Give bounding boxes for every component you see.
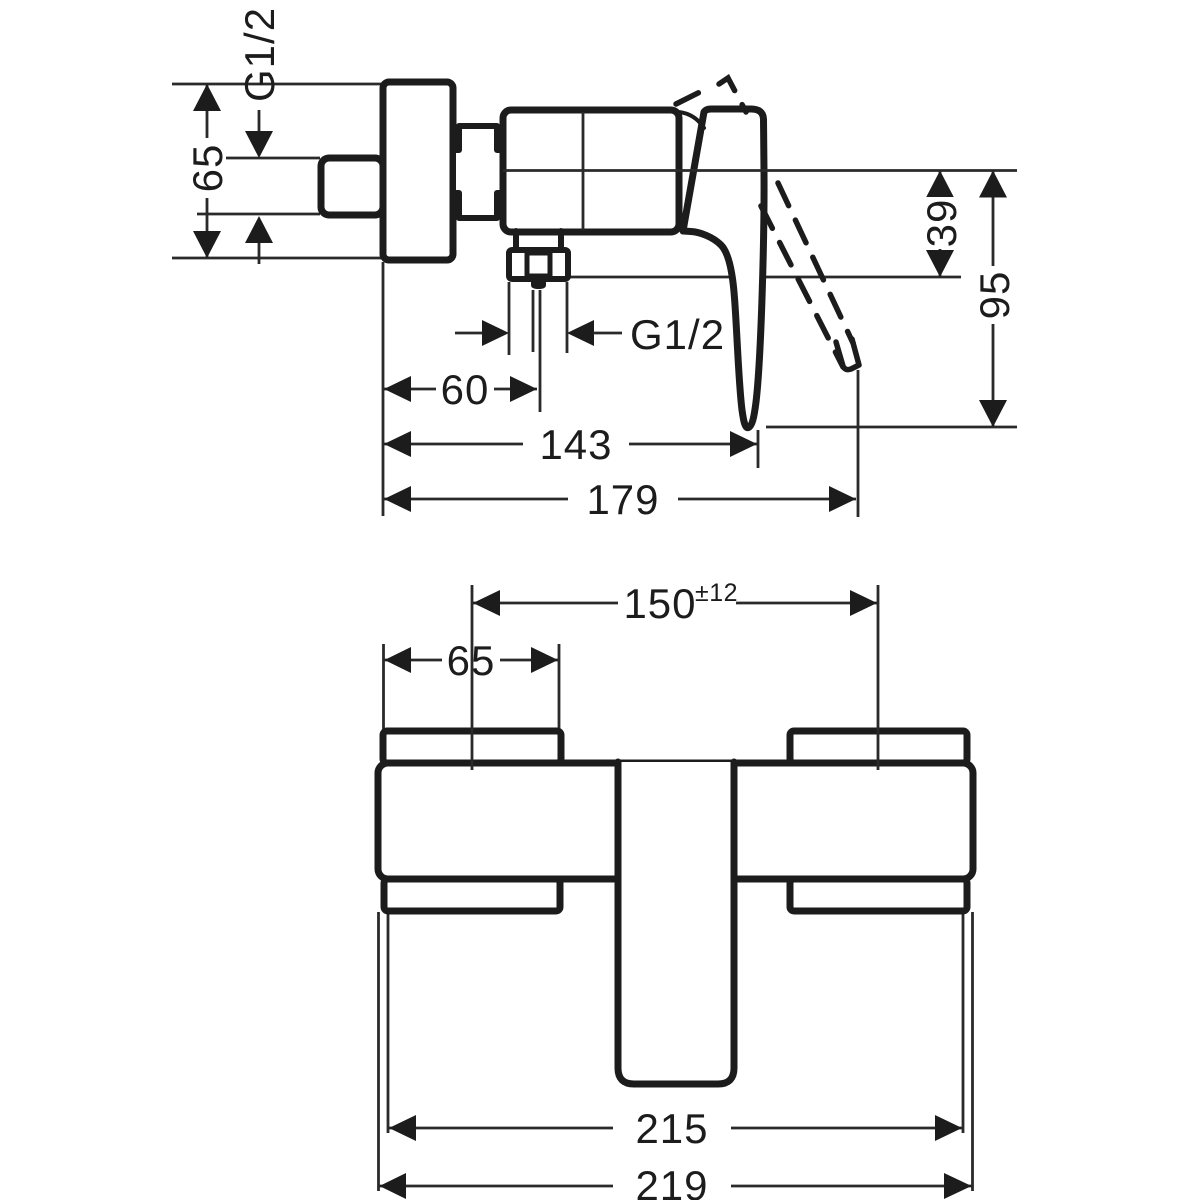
inlet-fitting — [321, 158, 383, 215]
dim-60-label: 60 — [441, 366, 490, 413]
dim-center-to-lever-tip: 95 — [971, 171, 1018, 428]
dim-179-label: 179 — [586, 476, 659, 523]
dim-215-label: 215 — [635, 1105, 708, 1152]
dim-150-tolerance-label: ±12 — [695, 579, 738, 607]
side-view-fixture — [321, 78, 859, 428]
dim-connection-centers: 150 ±12 — [473, 579, 877, 627]
top-view-fixture — [378, 731, 973, 1084]
drawing-page: 65 G1/2 39 95 — [0, 0, 1200, 1200]
technical-drawing: 65 G1/2 39 95 — [0, 0, 1200, 1200]
dim-39-label: 39 — [918, 199, 965, 248]
flange-right — [790, 879, 967, 911]
label-outlet-thread: G1/2 — [455, 311, 725, 358]
lever-handle — [683, 109, 764, 428]
union-nut — [453, 126, 503, 218]
inlet-thread-label: G1/2 — [236, 7, 283, 102]
dim-overall-width: 219 — [380, 1162, 972, 1200]
side-view: 65 G1/2 39 95 — [172, 7, 1018, 523]
dim-center-to-outlet: 39 — [918, 171, 965, 278]
dim-body-width: 215 — [389, 1105, 962, 1152]
dim-95-label: 95 — [971, 271, 1018, 320]
dim-escutcheon-height: 65 — [184, 84, 231, 258]
flange-left — [384, 879, 560, 911]
dim-wall-to-outlet: 60 — [384, 366, 537, 413]
label-inlet-thread: G1/2 — [236, 7, 283, 264]
dim-150-label: 150 — [623, 580, 696, 627]
outlet-nipple — [531, 279, 546, 289]
dim-65-label: 65 — [184, 144, 231, 193]
outlet-connector — [509, 231, 568, 289]
dim-wall-to-lever: 143 — [384, 421, 757, 468]
dim-219-label: 219 — [635, 1162, 708, 1200]
top-view: 150 ±12 65 — [378, 579, 973, 1200]
handle-top-view — [618, 762, 734, 1084]
dim-overall-depth: 179 — [384, 476, 856, 523]
outlet-thread-label: G1/2 — [630, 311, 725, 358]
dim-143-label: 143 — [539, 421, 612, 468]
wall-escutcheon — [383, 82, 453, 260]
